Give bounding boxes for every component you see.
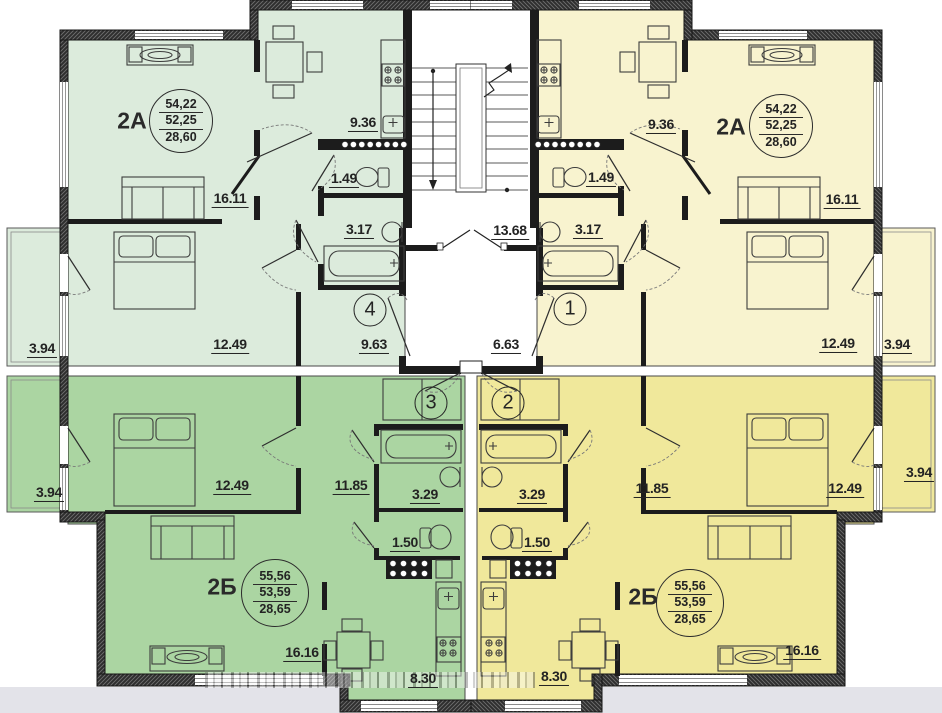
dim-kitchen: 8.30 xyxy=(539,669,569,686)
dim-bath: 3.29 xyxy=(410,487,440,504)
dim-hall: 11.85 xyxy=(333,478,370,495)
apartment-code-bottom-right: 2Б xyxy=(628,584,657,611)
area-total: 54,22 xyxy=(765,102,796,118)
dim-balcony: 3.94 xyxy=(904,465,934,482)
apartment-code-top-left: 2А xyxy=(117,108,146,135)
area-living: 53,59 xyxy=(668,594,712,612)
dim-balcony: 3.94 xyxy=(34,485,64,502)
dim-living: 16.11 xyxy=(824,192,861,209)
apartment-area-circle-bottom-right: 55,56 53,59 28,65 xyxy=(656,569,724,637)
dim-hall: 9.63 xyxy=(359,337,389,354)
labels-layer: 2А 54,22 52,25 28,60 16.11 12.49 3.94 9.… xyxy=(0,0,942,713)
apartment-code-bottom-left: 2Б xyxy=(207,574,236,601)
dim-bath: 3.17 xyxy=(573,222,603,239)
dim-living: 16.11 xyxy=(212,191,249,208)
area-total: 55,56 xyxy=(674,579,705,595)
area-total: 55,56 xyxy=(259,569,290,585)
area-kitchen: 28,60 xyxy=(765,135,796,151)
area-kitchen: 28,65 xyxy=(674,612,705,628)
unit-number-3: 3 xyxy=(415,387,448,420)
dim-kitchen: 8.30 xyxy=(408,671,438,688)
dim-balcony: 3.94 xyxy=(882,337,912,354)
dim-living: 16.16 xyxy=(283,645,321,662)
dim-wc: 1.50 xyxy=(390,535,420,552)
dim-bath: 3.17 xyxy=(344,222,374,239)
unit-number-2: 2 xyxy=(492,387,525,420)
area-kitchen: 28,60 xyxy=(165,130,196,146)
apartment-area-circle-bottom-left: 55,56 53,59 28,65 xyxy=(241,559,309,627)
apartment-area-circle-top-left: 54,22 52,25 28,60 xyxy=(149,89,213,153)
dim-balcony: 3.94 xyxy=(27,341,57,358)
dim-bedroom: 12.49 xyxy=(819,336,857,353)
dim-hall: 6.63 xyxy=(491,337,521,354)
apartment-code-top-right: 2А xyxy=(716,114,745,141)
apartment-area-circle-top-right: 54,22 52,25 28,60 xyxy=(749,94,813,158)
dim-bath: 3.29 xyxy=(517,487,547,504)
dim-kitchen: 9.36 xyxy=(348,115,378,132)
area-living: 52,25 xyxy=(159,112,203,130)
dim-bedroom: 12.49 xyxy=(826,481,864,498)
dim-wc: 1.49 xyxy=(586,170,616,187)
dim-wc: 1.49 xyxy=(329,171,359,188)
dim-stair-landing: 13.68 xyxy=(491,223,529,240)
dim-hall: 11.85 xyxy=(634,481,671,498)
dim-wc: 1.50 xyxy=(522,535,552,552)
dim-bedroom: 12.49 xyxy=(211,337,249,354)
dim-kitchen: 9.36 xyxy=(646,117,676,134)
area-kitchen: 28,65 xyxy=(259,602,290,618)
area-total: 54,22 xyxy=(165,97,196,113)
unit-number-4: 4 xyxy=(354,294,387,327)
dim-living: 16.16 xyxy=(783,643,821,660)
floor-plan: 2А 54,22 52,25 28,60 16.11 12.49 3.94 9.… xyxy=(0,0,942,713)
dim-bedroom: 12.49 xyxy=(213,478,251,495)
area-living: 52,25 xyxy=(759,117,803,135)
unit-number-1: 1 xyxy=(554,293,587,326)
area-living: 53,59 xyxy=(253,584,297,602)
